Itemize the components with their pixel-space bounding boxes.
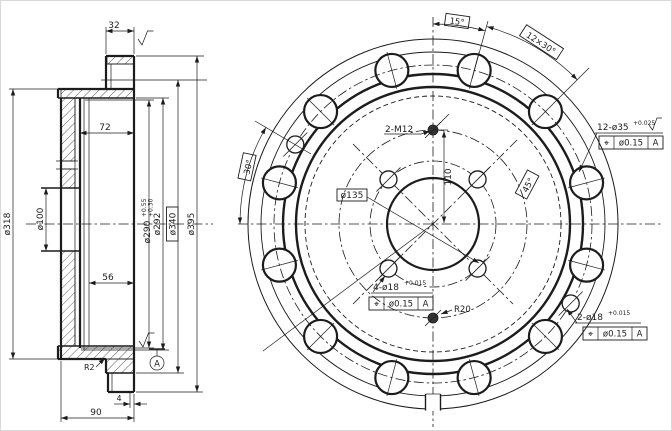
holes12-callout: 12-ø35 +0.025 ⌖ ø0.15 A xyxy=(579,118,663,172)
dim-56: 56 xyxy=(102,273,114,283)
engineering-drawing-canvas: 32 72 56 90 4 R2 ø318 ø100 ø xyxy=(0,0,672,431)
holes2-tol: +0.015 xyxy=(608,310,630,317)
fcf-datum: A xyxy=(637,330,643,340)
hole-spacing-dim: 12×30° xyxy=(487,25,589,100)
dim-r2: R2 xyxy=(84,363,95,372)
dim-dia395: ø395 xyxy=(187,213,197,236)
r20-label: R20 xyxy=(454,305,471,315)
position-icon: ⌖ xyxy=(604,139,609,149)
surface-finish-icon xyxy=(138,31,154,45)
dim-dia100: ø100 xyxy=(36,207,46,230)
holes12-label: 12-ø35 xyxy=(597,123,629,133)
angle-45-dim: 45° xyxy=(515,170,539,199)
hole-spacing-label: 12×30° xyxy=(524,31,557,57)
dim-dia318: ø318 xyxy=(3,212,13,235)
datum-a-symbol: A xyxy=(149,349,165,370)
dim-90: 90 xyxy=(90,408,102,418)
front-centerlines xyxy=(238,17,663,427)
dim-dia290: ø290 xyxy=(143,220,153,243)
surface-finish-icon xyxy=(139,333,155,347)
fcf-tolerance: ø0.15 xyxy=(389,300,413,310)
r20-callout: R20 xyxy=(441,305,471,315)
dim-72: 72 xyxy=(99,123,110,133)
radius-110-label: 110 xyxy=(444,168,454,185)
front-view: 15° 12×30° 30° 45° 2 xyxy=(238,13,663,427)
holes4-tol: +0.015 xyxy=(404,280,426,287)
dim-4: 4 xyxy=(116,394,121,403)
holes2-callout: 2-ø18 +0.015 ⌖ ø0.15 A xyxy=(567,309,647,340)
rim-notch xyxy=(426,394,441,411)
fcf-datum: A xyxy=(653,139,659,149)
dim-32: 32 xyxy=(108,21,119,31)
holes12-tol: +0.025 xyxy=(633,120,655,127)
fcf-tolerance: ø0.15 xyxy=(603,330,627,340)
section-view: 32 72 56 90 4 R2 ø318 ø100 ø xyxy=(3,21,213,422)
dim-dia292: ø292 xyxy=(153,213,163,236)
datum-a-label: A xyxy=(154,360,160,370)
fcf-datum: A xyxy=(423,300,429,310)
fcf-tolerance: ø0.15 xyxy=(619,139,643,149)
dia-135-callout: ø135 xyxy=(337,189,479,263)
dia-135-label: ø135 xyxy=(341,191,364,201)
position-icon: ⌖ xyxy=(588,330,593,340)
position-icon: ⌖ xyxy=(374,300,379,310)
angle-30-label: 30° xyxy=(243,159,256,176)
section-hatching xyxy=(58,57,134,374)
dim-dia340: ø340 xyxy=(169,212,179,235)
angle-15-label: 15° xyxy=(449,16,465,28)
angle-45-label: 45° xyxy=(521,176,537,194)
radius-110-dim: 110 xyxy=(435,130,454,223)
holes4-label: 4-ø18 xyxy=(373,283,399,293)
m12-label: 2-M12 xyxy=(385,125,413,135)
holes2-label: 2-ø18 xyxy=(577,313,603,323)
holes4-callout: 4-ø18 +0.015 ⌖ ø0.15 A xyxy=(369,276,433,310)
brake-drum-drawing: 32 72 56 90 4 R2 ø318 ø100 ø xyxy=(1,1,672,431)
